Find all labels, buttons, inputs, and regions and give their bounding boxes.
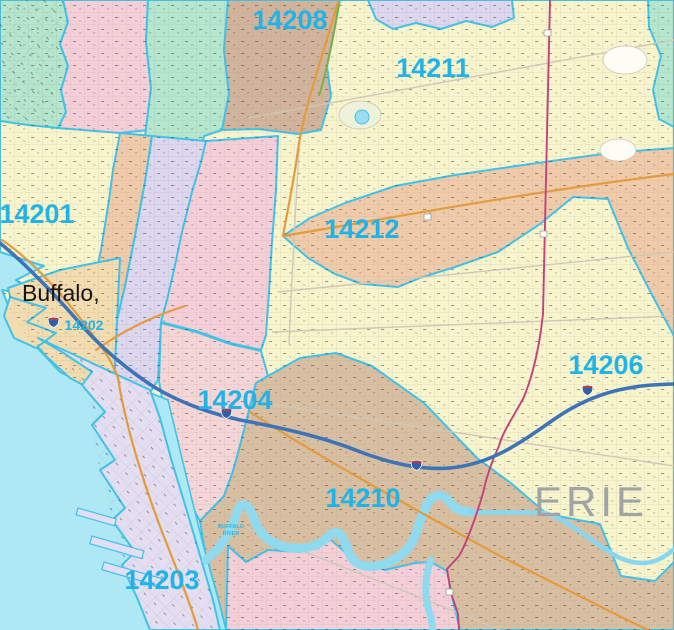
zip-label-14208: 14208 <box>252 5 327 35</box>
zip-label-14210: 14210 <box>325 483 400 513</box>
zip-label-14202: 14202 <box>65 317 104 333</box>
zip-label-14211: 14211 <box>396 53 470 83</box>
river-label-line1: BUFFALO <box>218 524 245 530</box>
park-pond <box>355 110 369 124</box>
river-label-line2: RIVER <box>223 531 240 537</box>
open-area-e <box>600 139 636 161</box>
route-shield-icon <box>544 30 551 36</box>
zip-label-14201: 14201 <box>0 199 75 229</box>
map-viewport[interactable]: 14208 14211 14201 14212 14202 14206 1420… <box>0 0 674 630</box>
zip-label-14212: 14212 <box>324 214 399 244</box>
route-shield-icon <box>446 589 453 595</box>
open-area-ne <box>603 46 647 74</box>
route-shield-icon <box>424 214 431 220</box>
city-label-buffalo: Buffalo, <box>22 280 100 306</box>
map-canvas: 14208 14211 14201 14212 14202 14206 1420… <box>0 0 674 630</box>
route-shield-icon <box>540 231 547 237</box>
street-grid-diagonal-texture <box>0 0 63 128</box>
zip-label-14206: 14206 <box>568 350 643 380</box>
zip-label-14203: 14203 <box>124 565 199 595</box>
county-label-erie: ERIE <box>534 478 648 525</box>
zip-label-14204: 14204 <box>197 385 272 415</box>
